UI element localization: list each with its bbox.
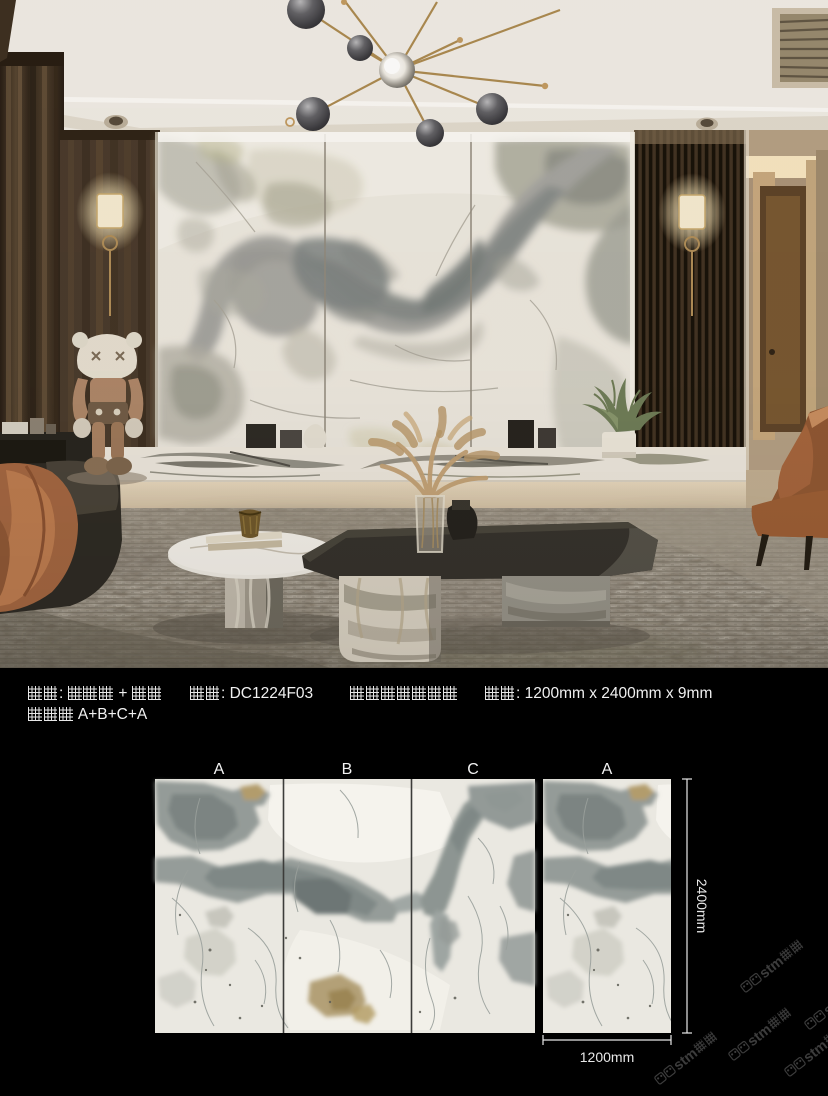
svg-text:2400mm: 2400mm — [694, 879, 710, 933]
svg-text:1200mm: 1200mm — [580, 1049, 634, 1065]
